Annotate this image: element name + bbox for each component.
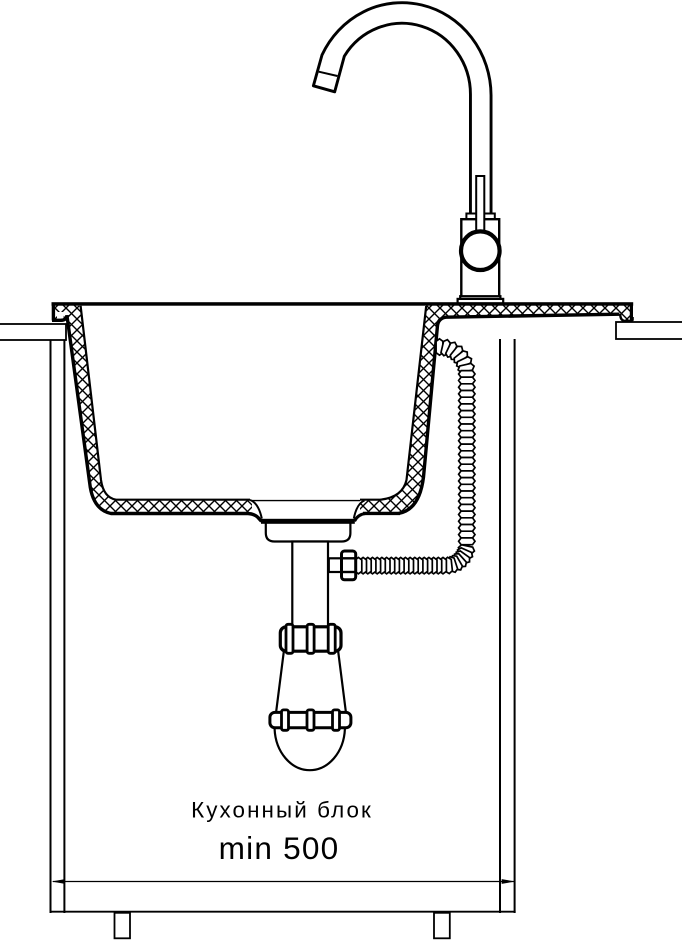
svg-text:Кухонный блок: Кухонный блок	[191, 798, 373, 823]
svg-text:min 500: min 500	[219, 830, 340, 866]
